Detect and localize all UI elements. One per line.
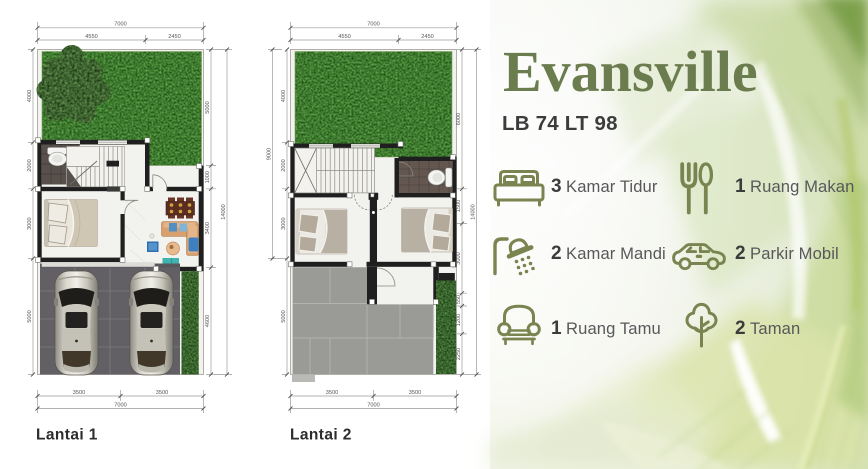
svg-text:4550: 4550: [338, 34, 350, 40]
svg-text:2000: 2000: [27, 159, 33, 171]
svg-text:3500: 3500: [326, 390, 338, 396]
svg-text:9000: 9000: [267, 148, 273, 160]
svg-text:5000: 5000: [27, 310, 33, 322]
svg-text:Lantai 2: Lantai 2: [290, 427, 352, 444]
svg-text:7000: 7000: [114, 402, 126, 408]
svg-text:5000: 5000: [205, 101, 211, 113]
svg-text:4550: 4550: [85, 34, 97, 40]
svg-text:2000: 2000: [281, 159, 287, 171]
svg-text:3000: 3000: [27, 217, 33, 229]
svg-text:550: 550: [456, 295, 462, 304]
svg-text:1200: 1200: [456, 314, 462, 326]
svg-text:3000: 3000: [281, 217, 287, 229]
svg-text:7000: 7000: [114, 22, 126, 28]
svg-text:2250: 2250: [456, 348, 462, 360]
svg-text:4000: 4000: [281, 90, 287, 102]
svg-text:1500: 1500: [456, 200, 462, 212]
svg-text:3500: 3500: [156, 390, 168, 396]
svg-text:7000: 7000: [367, 22, 379, 28]
svg-text:7000: 7000: [367, 402, 379, 408]
svg-text:14000: 14000: [471, 204, 477, 220]
svg-text:4600: 4600: [205, 315, 211, 327]
svg-text:2450: 2450: [421, 34, 433, 40]
svg-text:5000: 5000: [281, 310, 287, 322]
svg-text:3000: 3000: [456, 252, 462, 264]
svg-text:2450: 2450: [168, 34, 180, 40]
svg-text:14000: 14000: [221, 204, 227, 220]
svg-text:6000: 6000: [456, 113, 462, 125]
svg-text:3400: 3400: [205, 222, 211, 234]
svg-text:4000: 4000: [27, 90, 33, 102]
svg-text:3500: 3500: [409, 390, 421, 396]
svg-text:3500: 3500: [73, 390, 85, 396]
svg-text:Lantai 1: Lantai 1: [36, 427, 98, 444]
svg-text:1000: 1000: [205, 171, 211, 183]
